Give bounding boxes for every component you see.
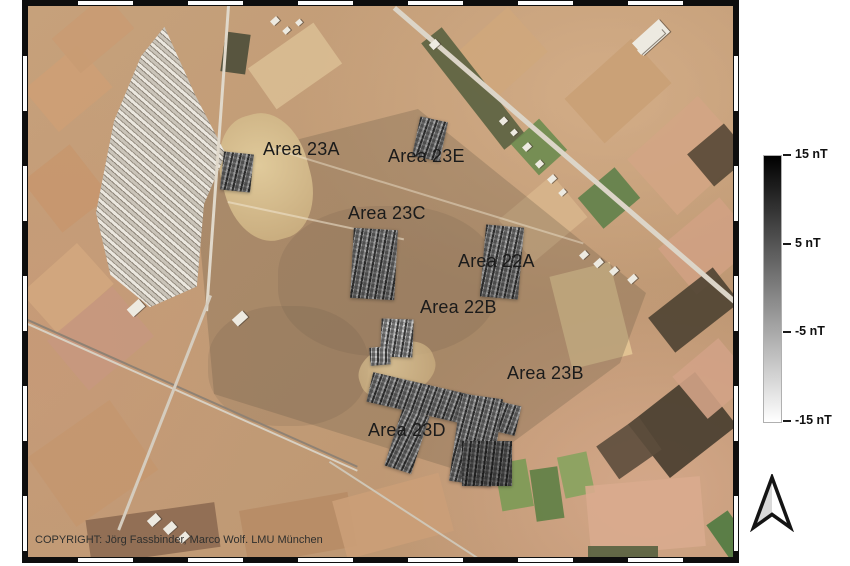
copyright-text: COPYRIGHT: Jörg Fassbinder, Marco Wolf. … [35, 534, 323, 546]
map-frame-bottom [22, 557, 739, 563]
legend-tick-label: -5 nT [795, 324, 825, 338]
area-label-area-23d: Area 23D [368, 420, 446, 441]
magnetometry-patch [369, 346, 390, 366]
area-label-area-22a: Area 22A [458, 251, 535, 272]
field-patch [706, 510, 733, 557]
north-arrow-icon [750, 474, 794, 532]
legend: 15 nT5 nT-5 nT-15 nT [763, 155, 848, 423]
building [270, 16, 280, 26]
terrain-shading [208, 306, 368, 426]
legend-colorbar [763, 155, 782, 423]
legend-tick-label: 15 nT [795, 147, 828, 161]
magnetometry-patch [220, 152, 254, 193]
legend-tick-label: -15 nT [795, 413, 832, 427]
field-patch [86, 502, 221, 557]
area-label-area-23a: Area 23A [263, 139, 340, 160]
building [282, 26, 291, 34]
field-patch [588, 546, 658, 557]
building [627, 274, 638, 284]
magnetometry-patch [462, 441, 512, 486]
legend-tick-mark [783, 243, 791, 245]
figure: Area 23AArea 23EArea 23CArea 22AArea 22B… [0, 0, 850, 566]
area-label-area-22b: Area 22B [420, 297, 497, 318]
legend-tick-mark [783, 331, 791, 333]
area-label-area-23c: Area 23C [348, 203, 426, 224]
legend-tick-mark [783, 154, 791, 156]
field-patch [332, 473, 454, 557]
field-patch [585, 476, 706, 556]
field-patch [28, 400, 158, 527]
area-label-area-23e: Area 23E [388, 146, 465, 167]
area-label-area-23b: Area 23B [507, 363, 584, 384]
field-patch [248, 23, 342, 110]
legend-tick-mark [783, 420, 791, 422]
field-patch [564, 39, 671, 144]
satellite-map: Area 23AArea 23EArea 23CArea 22AArea 22B… [28, 6, 733, 557]
legend-tick-label: 5 nT [795, 236, 821, 250]
building [295, 19, 303, 27]
field-patch [28, 144, 110, 232]
magnetometry-patch [350, 228, 398, 300]
map-frame-right [733, 0, 739, 563]
field-patch [530, 466, 565, 521]
